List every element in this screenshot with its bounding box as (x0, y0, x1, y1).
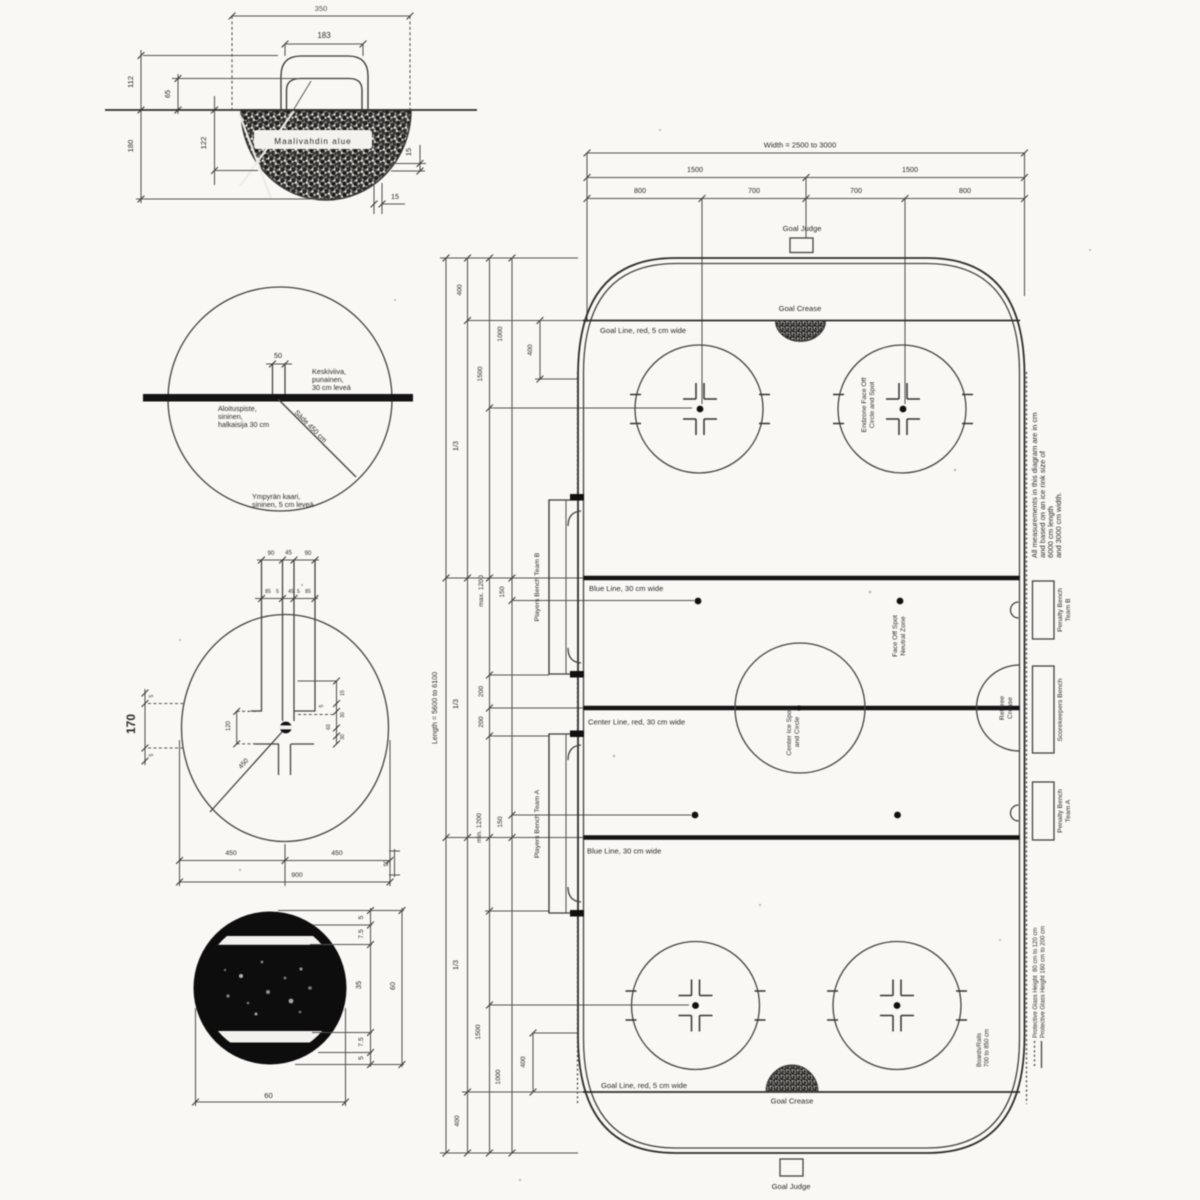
svg-text:1/3: 1/3 (451, 960, 460, 970)
svg-text:max. 1200: max. 1200 (478, 575, 485, 607)
svg-text:Circle and Spot: Circle and Spot (869, 382, 876, 429)
svg-text:30 cm leveä: 30 cm leveä (312, 383, 351, 392)
svg-text:Goal Judge: Goal Judge (772, 1182, 811, 1191)
svg-text:350: 350 (315, 4, 328, 13)
svg-text:30: 30 (340, 712, 346, 718)
svg-text:5: 5 (319, 704, 325, 707)
svg-text:Crease: Crease (1007, 697, 1014, 719)
svg-text:180: 180 (126, 140, 135, 153)
svg-text:Team A: Team A (1065, 799, 1072, 822)
svg-text:15: 15 (340, 690, 346, 696)
svg-text:85: 85 (305, 589, 311, 595)
svg-text:7.5: 7.5 (358, 929, 365, 939)
svg-text:15: 15 (391, 192, 399, 201)
svg-text:60: 60 (326, 724, 332, 730)
svg-text:min. 1200: min. 1200 (476, 813, 483, 843)
svg-text:Säde 450 cm: Säde 450 cm (293, 408, 329, 444)
svg-text:1000: 1000 (495, 1069, 502, 1084)
svg-text:65: 65 (163, 90, 172, 98)
svg-text:150: 150 (497, 816, 504, 828)
svg-text:Scorekeepers Bench: Scorekeepers Bench (1057, 678, 1064, 741)
svg-text:1/3: 1/3 (451, 441, 460, 451)
svg-text:700 to 850 cm: 700 to 850 cm (985, 1029, 991, 1067)
svg-text:and 3000 cm width.: and 3000 cm width. (1054, 492, 1063, 558)
svg-text:Face Off Spot: Face Off Spot (892, 615, 899, 657)
svg-text:Center Ice Spot: Center Ice Spot (786, 708, 793, 755)
svg-text:200: 200 (478, 686, 485, 698)
svg-text:800: 800 (634, 186, 646, 195)
svg-text:1500: 1500 (902, 165, 918, 174)
svg-text:700: 700 (850, 186, 862, 195)
svg-text:Width = 2500 to 3000: Width = 2500 to 3000 (764, 141, 836, 150)
svg-text:1500: 1500 (687, 165, 703, 174)
svg-text:Referee: Referee (999, 696, 1006, 720)
svg-text:halkaisija 30 cm: halkaisija 30 cm (218, 420, 269, 429)
svg-text:45: 45 (285, 551, 292, 557)
svg-text:and Circle: and Circle (794, 716, 801, 747)
svg-text:5: 5 (358, 915, 365, 919)
svg-text:Maalivahdin alue: Maalivahdin alue (274, 137, 351, 146)
svg-text:1500: 1500 (475, 1024, 482, 1039)
svg-text:112: 112 (126, 76, 135, 88)
svg-text:Players Bench Team A: Players Bench Team A (534, 789, 541, 858)
svg-text:60: 60 (264, 1091, 272, 1100)
svg-text:Goal Crease: Goal Crease (779, 304, 822, 313)
svg-text:1000: 1000 (497, 326, 504, 341)
svg-text:50: 50 (274, 351, 282, 360)
svg-text:60: 60 (388, 982, 397, 990)
svg-text:Neutral Zone: Neutral Zone (900, 616, 907, 656)
svg-text:Endzone Face Off: Endzone Face Off (861, 378, 868, 433)
svg-text:Team B: Team B (1065, 598, 1072, 622)
svg-text:5: 5 (276, 589, 279, 595)
svg-text:450: 450 (331, 850, 343, 857)
svg-text:900: 900 (291, 872, 303, 879)
svg-text:Protective Glass Height 160 cm: Protective Glass Height 160 cm to 200 cm (1041, 926, 1047, 1038)
svg-text:5: 5 (297, 589, 300, 595)
svg-text:400: 400 (457, 284, 464, 296)
svg-text:Penalty Bench: Penalty Bench (1057, 588, 1064, 632)
svg-text:Blue Line, 30 cm wide: Blue Line, 30 cm wide (589, 584, 663, 593)
svg-text:Goal Judge: Goal Judge (783, 224, 822, 233)
svg-text:Players Bench Team B: Players Bench Team B (534, 552, 541, 621)
svg-text:450: 450 (225, 850, 237, 857)
svg-text:800: 800 (959, 186, 971, 195)
svg-text:15: 15 (404, 148, 413, 156)
svg-text:400: 400 (454, 1115, 461, 1127)
svg-text:5: 5 (149, 694, 155, 697)
svg-text:183: 183 (317, 31, 331, 40)
svg-text:Blue Line, 30 cm wide: Blue Line, 30 cm wide (587, 847, 661, 856)
svg-text:120: 120 (226, 720, 232, 731)
svg-text:90: 90 (305, 551, 312, 557)
svg-text:200: 200 (478, 716, 485, 728)
svg-text:5: 5 (149, 753, 155, 756)
svg-text:90: 90 (268, 551, 275, 557)
svg-text:Boards/Rails: Boards/Rails (977, 1033, 983, 1067)
svg-text:122: 122 (199, 137, 208, 150)
svg-text:5: 5 (358, 1056, 365, 1060)
svg-text:Goal Line, red, 5 cm wide: Goal Line, red, 5 cm wide (601, 1081, 687, 1090)
svg-text:Penalty Bench: Penalty Bench (1057, 789, 1064, 833)
svg-text:Length = 5600 to 6100: Length = 5600 to 6100 (430, 672, 439, 744)
svg-text:150: 150 (499, 586, 506, 598)
svg-text:Goal Crease: Goal Crease (771, 1097, 814, 1106)
svg-text:sininen, 5 cm leveä: sininen, 5 cm leveä (252, 500, 314, 509)
svg-text:Protective Glass Height 80 cm: Protective Glass Height 80 cm to 120 cm (1033, 928, 1039, 1038)
svg-text:85: 85 (265, 589, 271, 595)
svg-text:700: 700 (748, 186, 760, 195)
svg-text:170: 170 (124, 714, 138, 734)
svg-text:400: 400 (527, 344, 534, 356)
svg-text:35: 35 (354, 981, 363, 989)
svg-text:7.5: 7.5 (358, 1037, 365, 1047)
svg-text:1500: 1500 (477, 366, 484, 381)
svg-text:400: 400 (520, 1056, 527, 1068)
svg-text:Goal Line, red, 5 cm wide: Goal Line, red, 5 cm wide (600, 326, 686, 335)
svg-text:1/3: 1/3 (451, 699, 460, 709)
svg-text:30: 30 (340, 734, 346, 740)
svg-text:Center Line, red, 30 cm wide: Center Line, red, 30 cm wide (588, 718, 685, 727)
svg-text:45: 45 (288, 589, 294, 595)
